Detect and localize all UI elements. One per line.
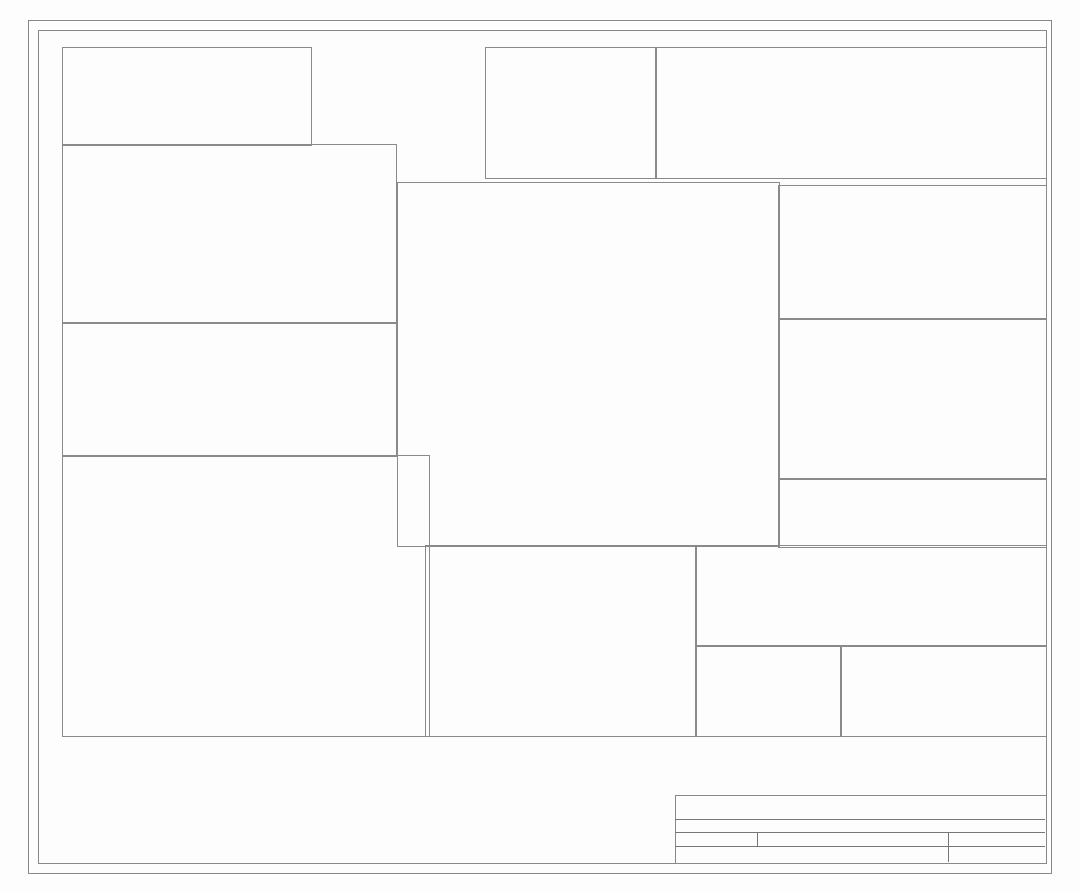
section-pindef-box xyxy=(62,455,430,737)
section-power-box xyxy=(655,47,1047,179)
section-serial-box xyxy=(695,545,1047,647)
title-block-line xyxy=(948,832,949,862)
section-typec-box xyxy=(778,185,1047,320)
title-block-line xyxy=(757,832,758,846)
section-indicator-box xyxy=(425,545,697,737)
section-mcu-box xyxy=(397,182,780,547)
section-swd-box xyxy=(778,478,1047,548)
title-block-box xyxy=(675,795,1047,864)
section-ref-filter-box xyxy=(62,144,397,324)
section-boot-box xyxy=(695,645,842,737)
title-block-line xyxy=(675,846,1045,847)
section-5v-select-box xyxy=(778,318,1047,480)
section-mcu-filter-box xyxy=(62,322,397,457)
section-fuse-box xyxy=(485,47,657,179)
schematic-sheet xyxy=(0,0,1080,893)
section-reset-box xyxy=(840,645,1047,737)
section-crystal-box xyxy=(62,47,312,146)
title-block-line xyxy=(675,832,1045,833)
title-block-line xyxy=(675,819,1045,820)
